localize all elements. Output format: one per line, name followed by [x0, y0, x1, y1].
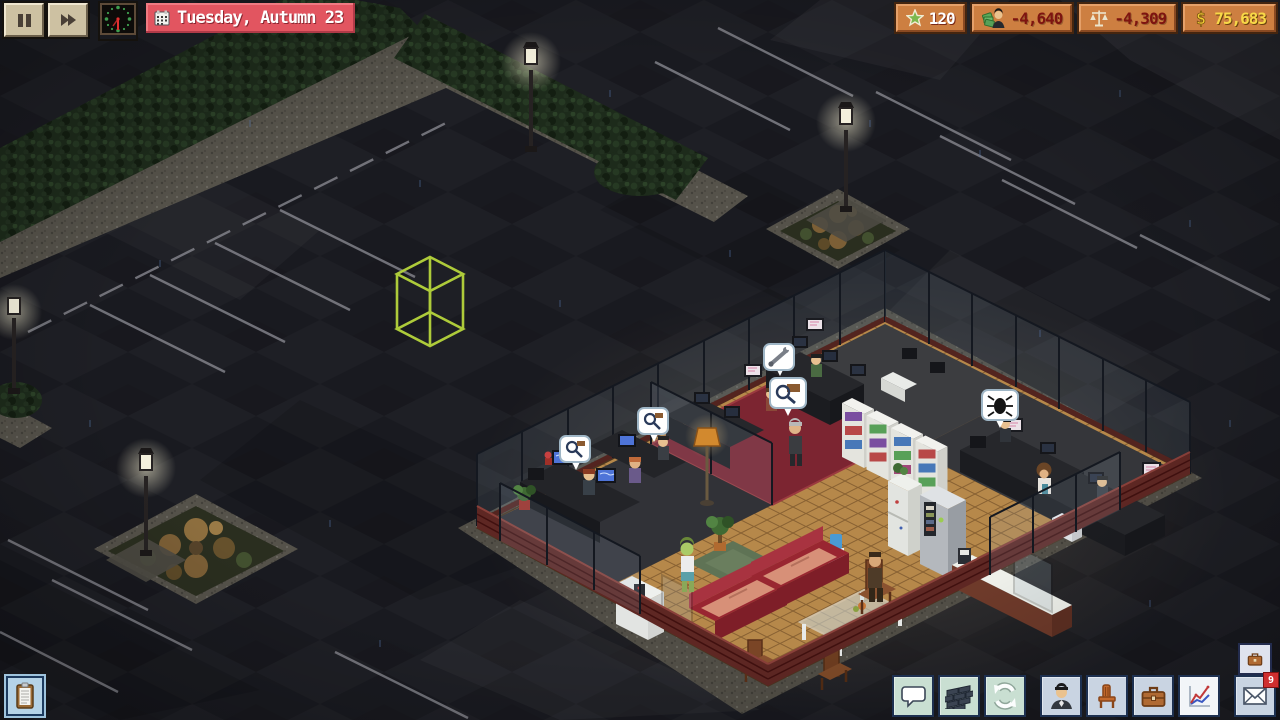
- resource-badges: 120 -4,640 -4,309 $ 75,683: [896, 4, 1276, 32]
- briefcase-icon: [1140, 684, 1167, 709]
- date-banner: Tuesday, Autumn 23: [146, 3, 355, 33]
- star-icon: [906, 9, 924, 27]
- date-label: Tuesday, Autumn 23: [177, 8, 343, 28]
- payroll-badge: -4,640: [972, 4, 1073, 32]
- chair-icon: [1094, 683, 1120, 710]
- furniture-button[interactable]: [1086, 675, 1128, 717]
- statistics-button[interactable]: [1178, 675, 1220, 717]
- payroll-value: -4,640: [1011, 9, 1063, 28]
- seated-employee[interactable]: [811, 354, 822, 377]
- line-chart-icon: [1186, 683, 1213, 710]
- net-badge: -4,309: [1079, 4, 1176, 32]
- cash-value: 75,683: [1214, 9, 1266, 28]
- chat-button[interactable]: [892, 675, 934, 717]
- business-button[interactable]: [1132, 675, 1174, 717]
- staff-button[interactable]: [1040, 675, 1082, 717]
- mail-button[interactable]: 9: [1234, 675, 1276, 717]
- game-viewport[interactable]: Tuesday, Autumn 23 120 -4,640 -4,309: [0, 0, 1280, 720]
- pause-button[interactable]: [4, 3, 44, 37]
- employee-icon: [1048, 683, 1075, 710]
- seated-employee[interactable]: [658, 436, 669, 460]
- action-toolbar: 9: [892, 675, 1276, 717]
- mini-briefcase-button[interactable]: [1238, 643, 1272, 675]
- analog-clock: [100, 3, 136, 39]
- svg-text:$: $: [1196, 9, 1206, 28]
- pause-icon: [18, 14, 23, 27]
- brick-wall-icon: [945, 683, 973, 709]
- clock-icon: [100, 3, 136, 35]
- net-value: -4,309: [1114, 9, 1166, 28]
- refresh-arrows-icon: [991, 682, 1019, 710]
- cash-badge: $ 75,683: [1183, 4, 1276, 32]
- payroll-person-icon: [982, 8, 1006, 28]
- tasks-clipboard-button[interactable]: [6, 676, 44, 716]
- fans-badge: 120: [896, 4, 965, 32]
- seated-employee-redhead[interactable]: [583, 469, 595, 495]
- fans-value: 120: [929, 9, 955, 28]
- calendar-icon: [154, 10, 170, 26]
- chat-bubble-icon: [900, 683, 927, 710]
- game-world[interactable]: [0, 0, 1280, 720]
- refresh-button[interactable]: [984, 675, 1026, 717]
- fast-forward-button[interactable]: [48, 3, 88, 37]
- dollar-icon: $: [1193, 8, 1209, 28]
- scales-icon: [1089, 8, 1109, 28]
- seated-employee[interactable]: [629, 457, 641, 483]
- mail-count-badge: 9: [1263, 672, 1279, 688]
- standing-character-green[interactable]: [680, 537, 694, 592]
- mini-briefcase-icon: [1246, 651, 1264, 667]
- build-walls-button[interactable]: [938, 675, 980, 717]
- time-controls: Tuesday, Autumn 23: [4, 3, 355, 39]
- clipboard-icon: [13, 682, 37, 710]
